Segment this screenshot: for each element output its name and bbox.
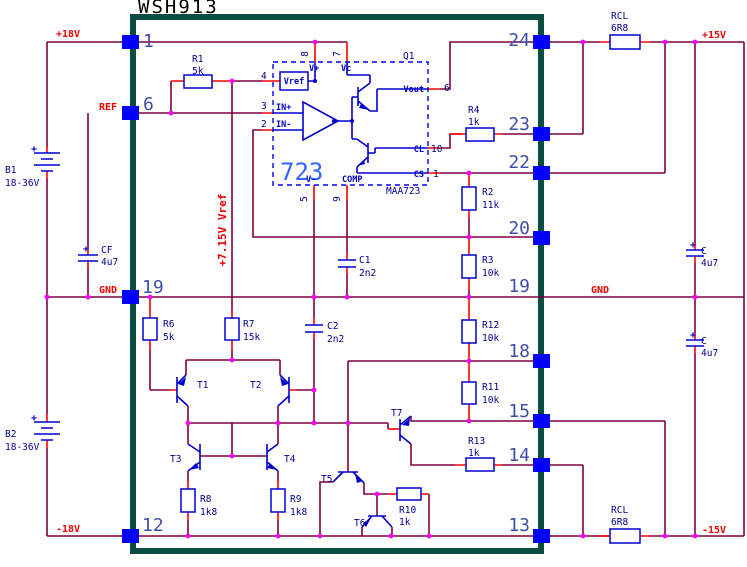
svg-text:4u7: 4u7 bbox=[701, 258, 718, 269]
pin-label-19r: 19 bbox=[508, 276, 530, 297]
svg-text:1k8: 1k8 bbox=[200, 507, 217, 518]
battery-b2: + B2 18-36V bbox=[5, 413, 60, 453]
svg-text:5k: 5k bbox=[192, 66, 204, 77]
resistor-r11: R11 10k bbox=[462, 382, 499, 406]
regulator-723: 723 MAA723 Q1 Vref V+ Vc IN+ IN- V- COMP… bbox=[261, 51, 450, 202]
resistor-r3: R3 10k bbox=[462, 255, 499, 279]
svg-text:+: + bbox=[690, 330, 696, 341]
ic-pin-num-5: 5 bbox=[299, 196, 310, 202]
regulator-part: MAA723 bbox=[386, 186, 420, 197]
resistor-r4: R4 1k bbox=[466, 105, 494, 141]
svg-text:1k8: 1k8 bbox=[290, 507, 307, 518]
svg-text:T5: T5 bbox=[321, 474, 332, 485]
svg-text:+: + bbox=[31, 413, 37, 424]
transistor-t7: T7 bbox=[391, 408, 411, 444]
svg-text:CF: CF bbox=[101, 245, 113, 256]
svg-text:18-36V: 18-36V bbox=[5, 442, 40, 453]
pin-label-20: 20 bbox=[508, 218, 530, 239]
svg-text:2n2: 2n2 bbox=[359, 268, 376, 279]
resistor-r7: R7 15k bbox=[225, 318, 260, 343]
label-gnd-l: GND bbox=[99, 285, 117, 296]
svg-text:10k: 10k bbox=[482, 333, 499, 344]
vref-box-label: Vref bbox=[284, 77, 304, 87]
pin-square-13 bbox=[533, 529, 550, 543]
pin-label-1: 1 bbox=[143, 31, 154, 52]
ic-pin-name-inp: IN+ bbox=[276, 103, 291, 113]
svg-text:1k: 1k bbox=[468, 448, 480, 459]
label-p18: +18V bbox=[56, 29, 80, 40]
label-p15: +15V bbox=[702, 30, 726, 41]
ic-pin-name-cs: CS bbox=[414, 170, 424, 180]
svg-text:R9: R9 bbox=[290, 494, 302, 505]
svg-text:2n2: 2n2 bbox=[327, 334, 344, 345]
schematic-canvas: WSH913 bbox=[0, 0, 747, 567]
regulator-name: 723 bbox=[280, 158, 323, 186]
ic-pin-num-7: 7 bbox=[332, 51, 343, 57]
capacitor-c-bottom: + C 4u7 bbox=[686, 330, 718, 359]
capacitor-c1: C1 2n2 bbox=[338, 255, 376, 279]
svg-text:10k: 10k bbox=[482, 395, 499, 406]
resistor-r10: R10 1k bbox=[397, 488, 421, 528]
svg-text:10k: 10k bbox=[482, 268, 499, 279]
pin-label-23: 23 bbox=[508, 114, 530, 135]
resistor-r13: R13 1k bbox=[466, 436, 494, 471]
svg-text:T6: T6 bbox=[354, 518, 366, 529]
ic-pin-name-inm: IN- bbox=[276, 120, 291, 130]
svg-text:18-36V: 18-36V bbox=[5, 178, 40, 189]
ic-pin-num-10: 10 bbox=[431, 144, 443, 155]
svg-text:+: + bbox=[690, 240, 696, 251]
resistor-r1: R1 5k bbox=[184, 54, 212, 88]
ic-pin-num-9: 9 bbox=[332, 196, 343, 202]
svg-text:6R8: 6R8 bbox=[611, 23, 628, 34]
label-vref-rail: +7.15V Vref bbox=[216, 194, 229, 267]
resistor-rcl-bottom: RCL 6R8 bbox=[610, 505, 640, 543]
svg-text:T1: T1 bbox=[197, 380, 209, 391]
pin-square-23 bbox=[533, 127, 550, 141]
ic-pin-num-8: 8 bbox=[300, 51, 311, 57]
pin-square-12 bbox=[122, 529, 139, 543]
battery-b1: + B1 18-36V bbox=[5, 144, 60, 189]
resistor-r6: R6 5k bbox=[143, 318, 175, 343]
ic-pin-name-vminus: V- bbox=[306, 175, 316, 185]
svg-text:+: + bbox=[83, 244, 89, 255]
label-m15: -15V bbox=[702, 525, 726, 536]
svg-text:15k: 15k bbox=[243, 332, 260, 343]
capacitor-c2: C2 2n2 bbox=[305, 321, 344, 345]
svg-text:T3: T3 bbox=[170, 454, 181, 465]
pin-label-14: 14 bbox=[508, 445, 530, 466]
pin-label-13: 13 bbox=[508, 515, 530, 536]
svg-text:R3: R3 bbox=[482, 255, 493, 266]
pin-square-1 bbox=[122, 35, 139, 49]
svg-text:T7: T7 bbox=[391, 408, 402, 419]
svg-text:1k: 1k bbox=[399, 517, 411, 528]
ic-pin-name-vplus: V+ bbox=[309, 64, 319, 74]
svg-text:R2: R2 bbox=[482, 187, 493, 198]
svg-text:R13: R13 bbox=[468, 436, 485, 447]
ic-pin-num-4: 4 bbox=[261, 71, 267, 82]
transistor-t2: T2 bbox=[250, 375, 289, 406]
svg-text:B2: B2 bbox=[5, 429, 16, 440]
resistor-r12: R12 10k bbox=[462, 320, 499, 344]
transistor-t6: T6 bbox=[354, 516, 392, 529]
svg-text:4u7: 4u7 bbox=[101, 257, 118, 268]
svg-text:R7: R7 bbox=[243, 319, 254, 330]
npn-arrow-bottom bbox=[357, 160, 365, 166]
svg-text:R10: R10 bbox=[399, 505, 416, 516]
ic-pin-name-comp: COMP bbox=[342, 175, 362, 185]
module-title: WSH913 bbox=[138, 0, 219, 18]
svg-text:5k: 5k bbox=[163, 332, 175, 343]
resistor-rcl-top: RCL 6R8 bbox=[610, 11, 640, 49]
svg-text:R12: R12 bbox=[482, 320, 499, 331]
resistor-r2: R2 11k bbox=[462, 187, 499, 211]
svg-text:R4: R4 bbox=[468, 105, 480, 116]
pin-square-19 bbox=[122, 290, 139, 304]
pin-square-24 bbox=[533, 35, 550, 49]
pin-label-15: 15 bbox=[508, 401, 530, 422]
label-ref: REF bbox=[99, 102, 117, 113]
svg-text:R11: R11 bbox=[482, 382, 499, 393]
ic-pin-num-1: 1 bbox=[433, 169, 439, 180]
svg-text:RCL: RCL bbox=[611, 11, 628, 22]
svg-text:C2: C2 bbox=[327, 321, 338, 332]
ic-pin-name-vc: Vc bbox=[341, 64, 351, 74]
transistor-t1: T1 bbox=[177, 375, 209, 406]
ic-pin-name-cl: CL bbox=[414, 145, 424, 155]
svg-text:R8: R8 bbox=[200, 494, 212, 505]
pin-square-14 bbox=[533, 458, 550, 472]
svg-text:4u7: 4u7 bbox=[701, 348, 718, 359]
svg-text:1k: 1k bbox=[468, 117, 480, 128]
capacitor-c-top: + C 4u7 bbox=[686, 240, 718, 269]
ic-pin-num-6: 6 bbox=[444, 83, 450, 94]
transistor-t5: T5 bbox=[321, 472, 364, 485]
pin-label-18: 18 bbox=[508, 341, 530, 362]
svg-text:+: + bbox=[31, 144, 37, 155]
pin-square-18 bbox=[533, 354, 550, 368]
label-gnd-r: GND bbox=[591, 285, 609, 296]
resistor-r8: R8 1k8 bbox=[181, 489, 217, 518]
svg-text:C1: C1 bbox=[359, 255, 371, 266]
npn-arrow-top bbox=[359, 104, 369, 110]
capacitor-cf: + CF 4u7 bbox=[78, 244, 118, 268]
pin-label-6: 6 bbox=[143, 94, 154, 115]
transistor-t3: T3 bbox=[170, 444, 200, 471]
svg-text:R1: R1 bbox=[192, 54, 204, 65]
svg-text:B1: B1 bbox=[5, 165, 17, 176]
transistor-t4: T4 bbox=[267, 444, 296, 471]
ic-pin-num-2: 2 bbox=[261, 119, 267, 130]
label-m18: -18V bbox=[56, 524, 80, 535]
pin-label-12: 12 bbox=[142, 515, 164, 536]
ic-pin-num-3: 3 bbox=[261, 101, 267, 112]
resistor-r9: R9 1k8 bbox=[271, 489, 307, 518]
pin-label-24: 24 bbox=[508, 30, 530, 51]
pin-square-20 bbox=[533, 231, 550, 245]
pin-label-19l: 19 bbox=[142, 277, 164, 298]
pin-label-22: 22 bbox=[508, 152, 530, 173]
pin-square-15 bbox=[533, 414, 550, 428]
svg-text:C: C bbox=[701, 336, 707, 347]
pin-square-22 bbox=[533, 166, 550, 180]
svg-text:R6: R6 bbox=[163, 319, 175, 330]
svg-text:11k: 11k bbox=[482, 200, 499, 211]
svg-text:C: C bbox=[701, 246, 707, 257]
pin-square-6 bbox=[122, 106, 139, 120]
svg-text:T4: T4 bbox=[284, 454, 296, 465]
svg-text:6R8: 6R8 bbox=[611, 517, 628, 528]
ic-pin-name-vout: Vout bbox=[404, 85, 424, 95]
svg-text:T2: T2 bbox=[250, 380, 261, 391]
q1-designator: Q1 bbox=[403, 51, 415, 62]
svg-text:RCL: RCL bbox=[611, 505, 628, 516]
